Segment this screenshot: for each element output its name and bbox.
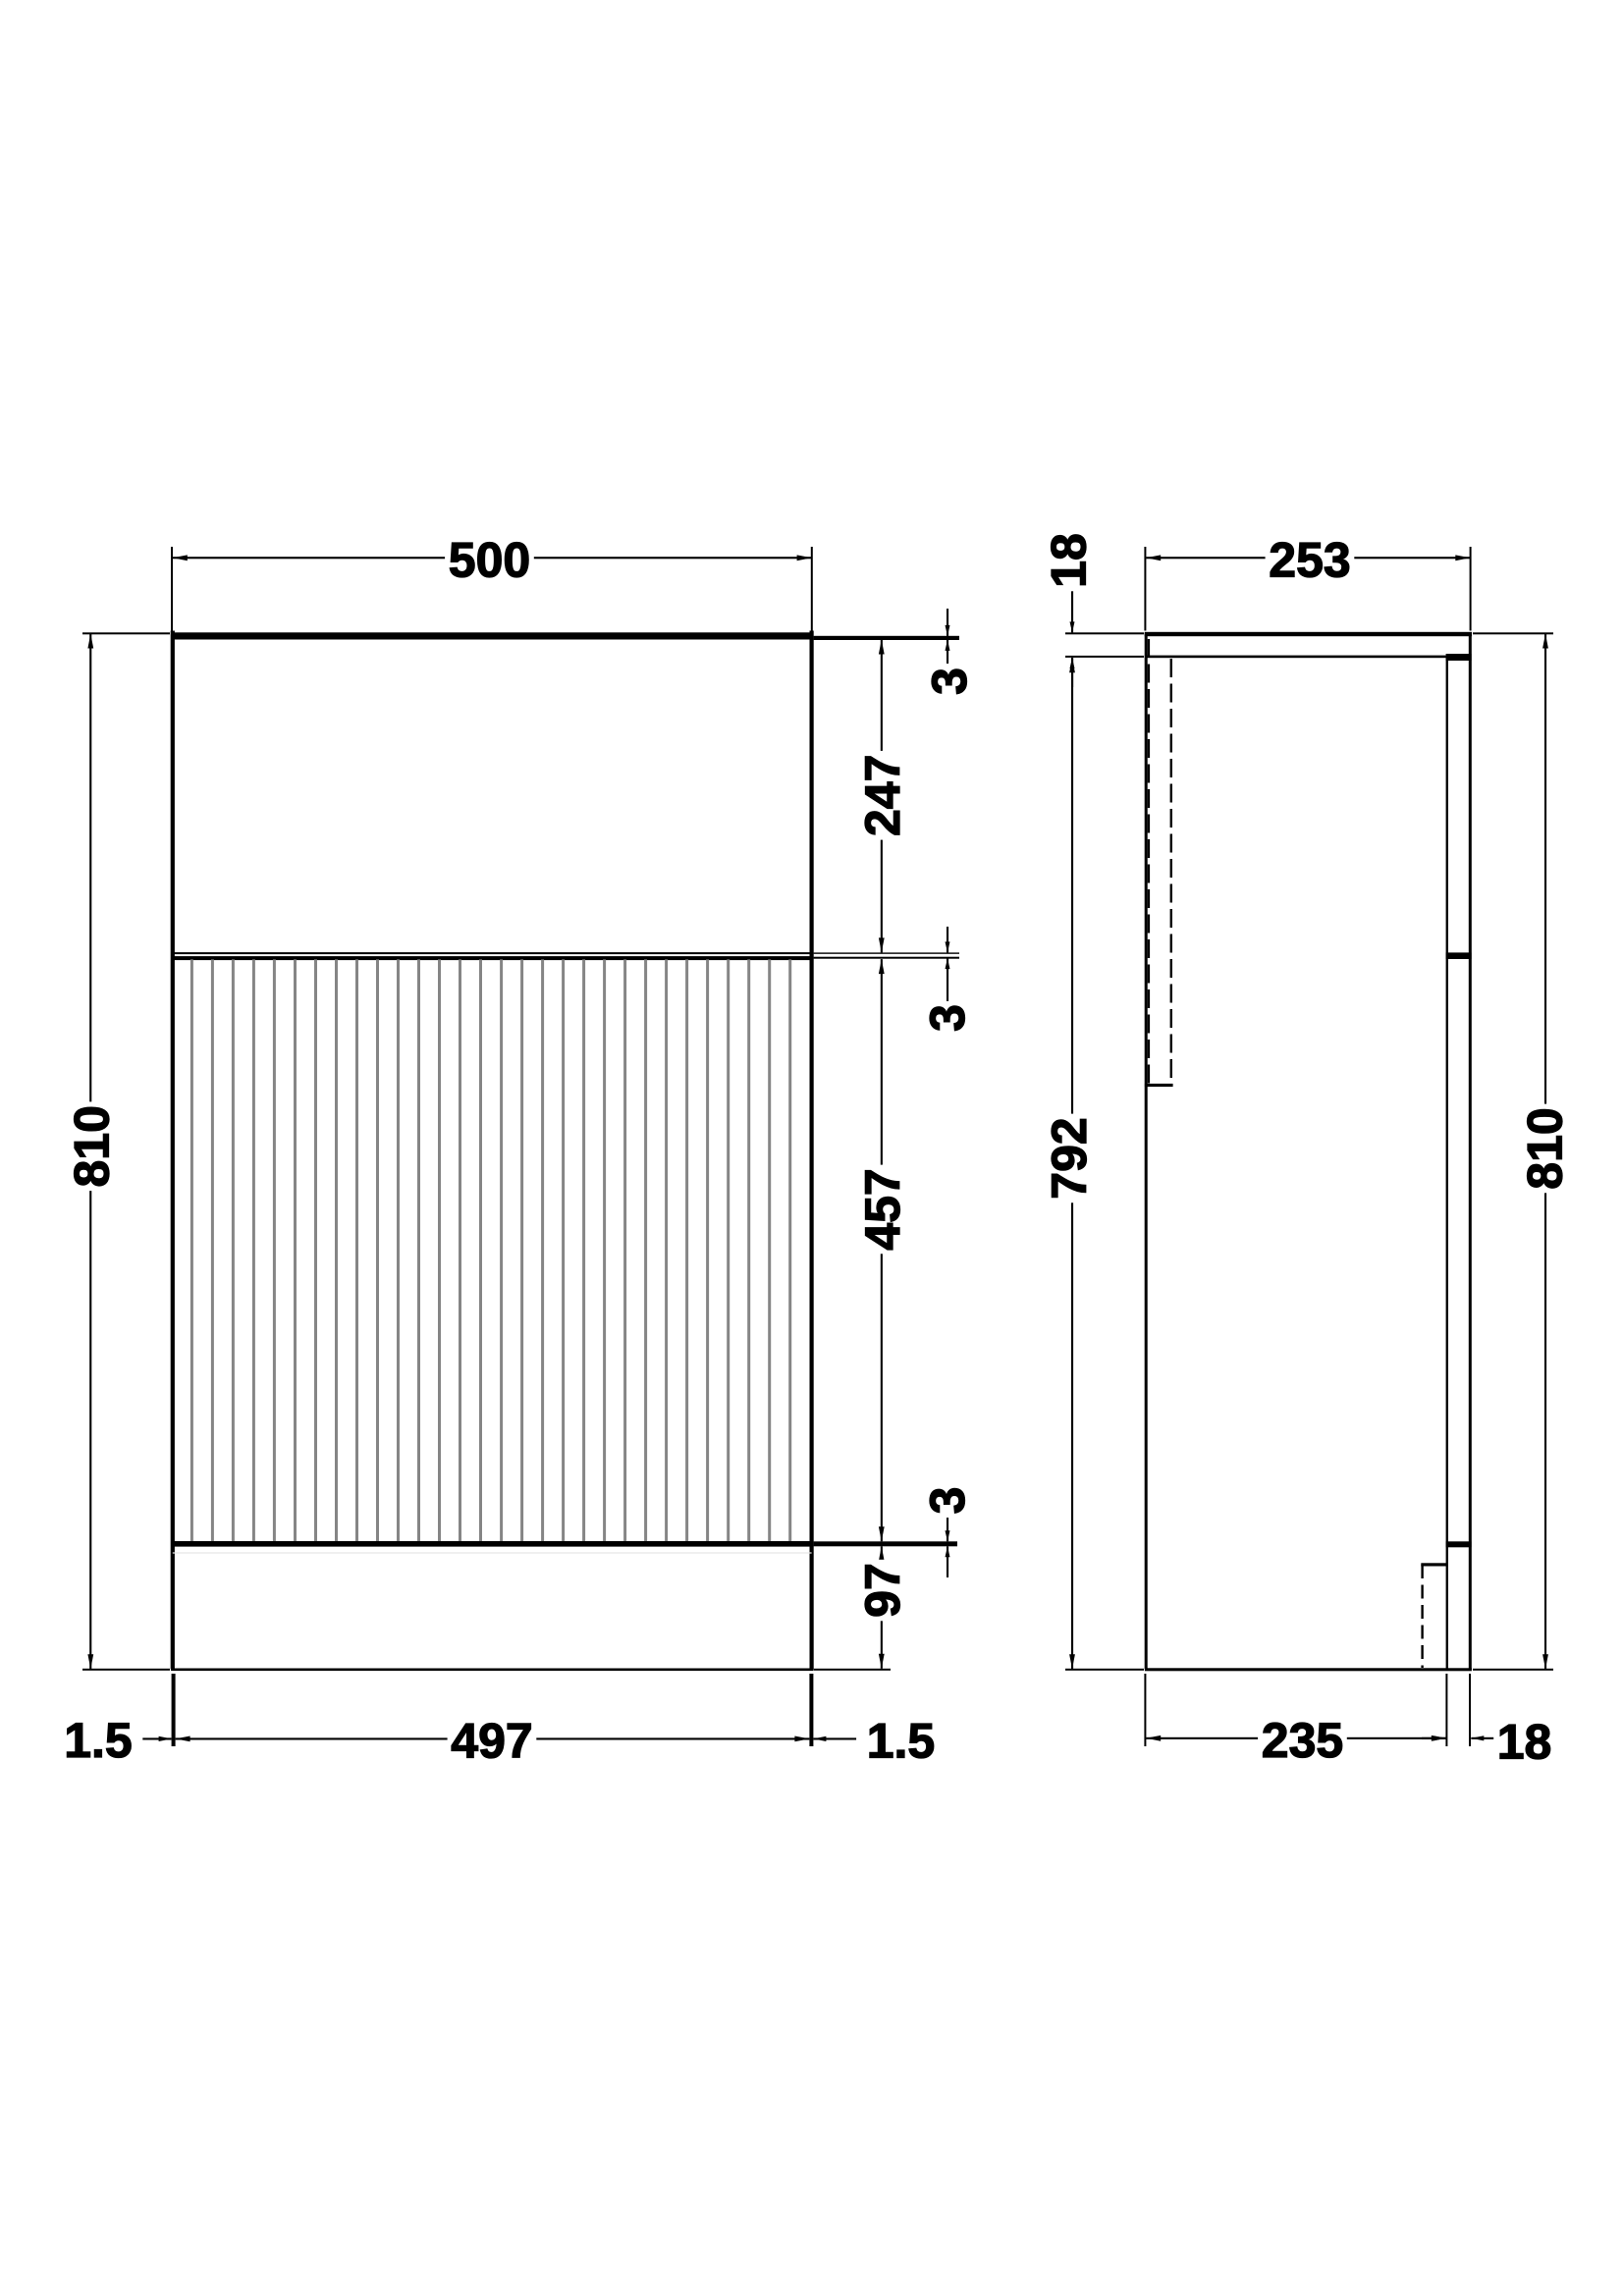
svg-text:810: 810 bbox=[64, 1105, 119, 1187]
svg-text:1.5: 1.5 bbox=[64, 1713, 133, 1768]
svg-text:247: 247 bbox=[855, 755, 910, 836]
svg-text:810: 810 bbox=[1518, 1107, 1573, 1189]
svg-text:18: 18 bbox=[1497, 1715, 1552, 1770]
svg-text:253: 253 bbox=[1269, 533, 1350, 588]
svg-text:18: 18 bbox=[1042, 533, 1097, 588]
svg-text:3: 3 bbox=[922, 667, 977, 695]
svg-text:792: 792 bbox=[1042, 1117, 1097, 1199]
svg-text:497: 497 bbox=[451, 1714, 532, 1769]
svg-text:97: 97 bbox=[855, 1563, 910, 1618]
svg-text:3: 3 bbox=[920, 1487, 975, 1515]
svg-text:235: 235 bbox=[1262, 1713, 1343, 1768]
svg-text:457: 457 bbox=[855, 1168, 910, 1250]
svg-text:1.5: 1.5 bbox=[867, 1714, 936, 1769]
svg-text:500: 500 bbox=[449, 533, 530, 588]
svg-text:3: 3 bbox=[920, 1004, 975, 1032]
